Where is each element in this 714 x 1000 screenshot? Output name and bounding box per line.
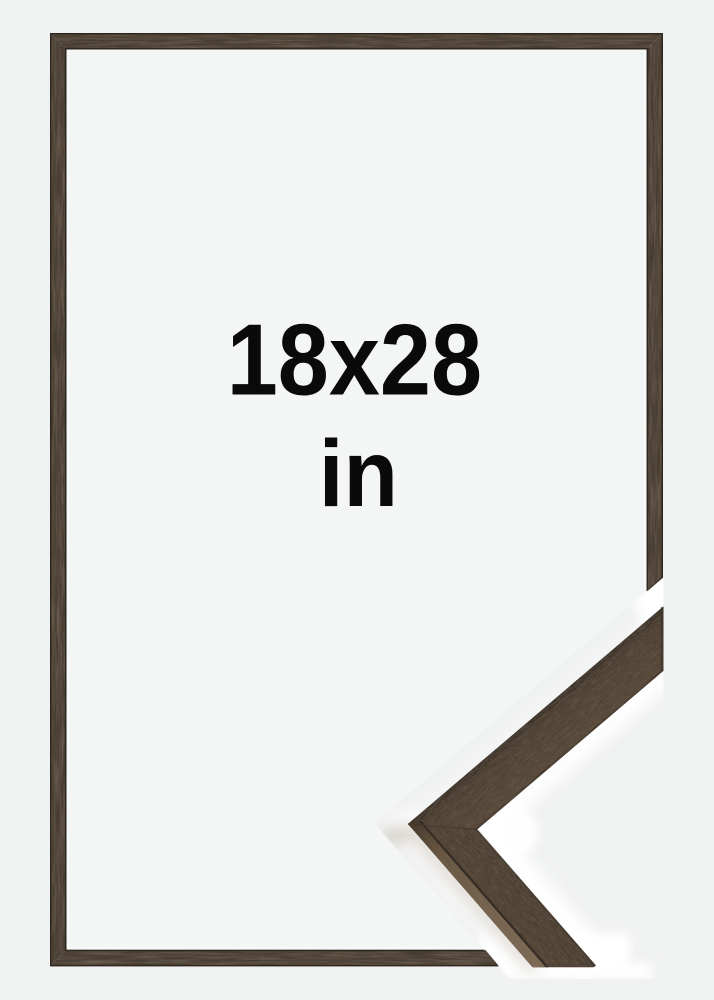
svg-text:in: in — [319, 421, 398, 526]
svg-text:18x28: 18x28 — [227, 304, 482, 416]
